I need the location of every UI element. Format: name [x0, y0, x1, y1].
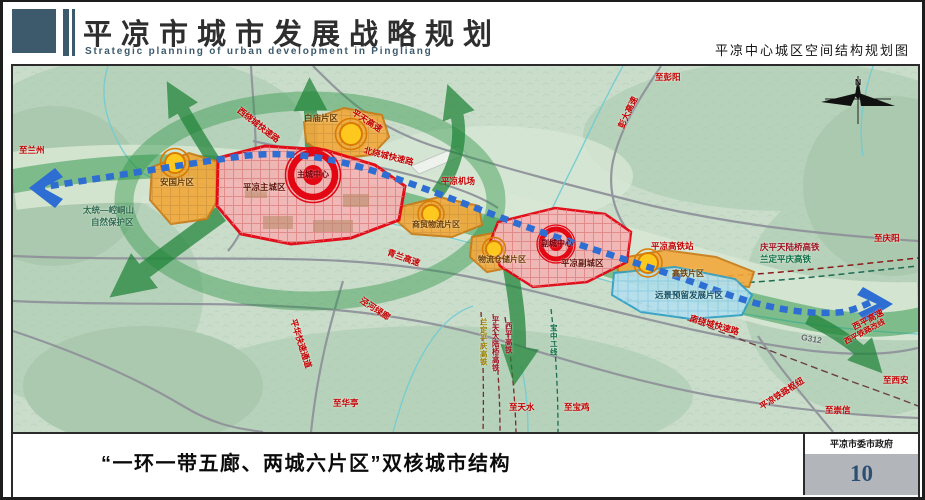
map-label-landing-hsr: 兰定平庆高铁	[760, 255, 811, 264]
compass-north-label: N	[855, 78, 861, 87]
zone-label-baimiao: 白庙片区	[304, 114, 338, 123]
map-label-xiping-hsr-vertical: 西平高铁	[504, 322, 512, 354]
map-label-hsr-station: 平凉高铁站	[651, 242, 694, 251]
zone-label-reserve: 远景预留发展片区	[655, 291, 723, 300]
footer-bar: “一环一带五廊、两城六片区”双核城市结构 平凉市委市政府 10	[11, 432, 920, 500]
zone-label-anguo: 安国片区	[160, 178, 194, 187]
map-label-to-chongxin: 至崇信	[825, 406, 851, 415]
planning-document-page: 平凉市城市发展战略规划 Strategic planning of urban …	[0, 0, 925, 500]
page-header: 平凉市城市发展战略规划 Strategic planning of urban …	[3, 2, 922, 63]
page-subtitle-english: Strategic planning of urban development …	[85, 46, 433, 57]
map-label-to-tianshui: 至天水	[509, 403, 535, 412]
map-label-to-huating: 至华亭	[333, 399, 359, 408]
footer-side-panel: 平凉市委市政府 10	[803, 434, 918, 495]
map-label-pingtian-bridge-hsr-vertical: 平天大陆桥高铁	[491, 316, 499, 372]
zone-label-wuliu: 物流仓储片区	[478, 256, 526, 264]
map-label-airport: 平凉机场	[441, 177, 475, 186]
map-label-to-xian: 至西安	[883, 376, 909, 385]
zone-label-gaotie: 高铁片区	[672, 270, 704, 278]
zone-label-sub-center: 副城中心	[541, 240, 573, 248]
page-number: 10	[805, 454, 918, 495]
map-label-baozhong-line-vertical: 宝中二线	[549, 324, 557, 356]
zone-label-shangmao: 商贸物流片区	[412, 221, 460, 229]
zone-label-sub-city: 平凉副城区	[561, 259, 604, 268]
header-accent-bar	[63, 9, 69, 56]
map-label-nature-reserve-line1: 太统—崆峒山	[83, 206, 134, 215]
map-label-to-qingyang: 至庆阳	[874, 234, 900, 243]
map-label-to-lanzhou: 至兰州	[19, 146, 45, 155]
zone-label-main-center: 主城中心	[297, 171, 329, 179]
map-label-to-pengyang: 至彭阳	[655, 73, 681, 82]
organization-label: 平凉市委市政府	[805, 434, 918, 454]
map-label-to-baoji: 至宝鸡	[564, 403, 590, 412]
header-accent-bar-thin	[72, 9, 75, 56]
map-frame: N 至兰州 太统—崆峒山 自然保护区 西绕城快速路 平天高速 北绕城快速路 平凉…	[11, 64, 920, 434]
map-label-landing-hsr-vertical: 兰定平庆高铁	[479, 318, 487, 366]
map-label-nature-reserve-line2: 自然保护区	[91, 218, 134, 227]
map-label-qingping-hsr: 庆平天陆桥高铁	[760, 243, 820, 252]
logo-square	[12, 9, 56, 53]
structure-caption: “一环一带五廊、两城六片区”双核城市结构	[101, 434, 511, 495]
map-caption-title: 平凉中心城区空间结构规划图	[715, 40, 910, 59]
zone-label-main-city: 平凉主城区	[243, 183, 286, 192]
